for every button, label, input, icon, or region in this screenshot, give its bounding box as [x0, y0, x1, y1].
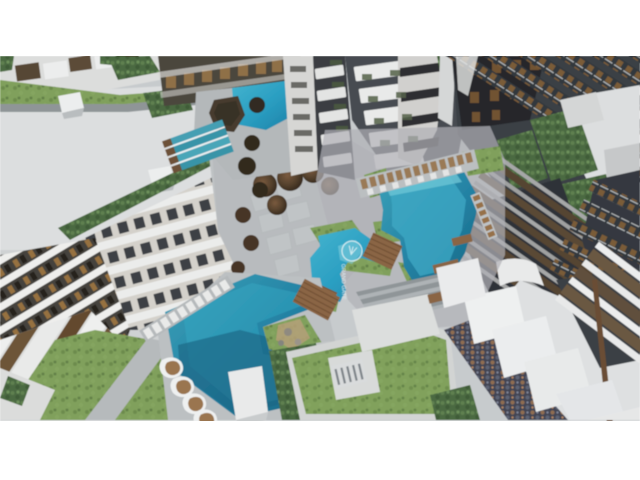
svg-text:GRAND GATE: GRAND GATE [340, 264, 347, 300]
